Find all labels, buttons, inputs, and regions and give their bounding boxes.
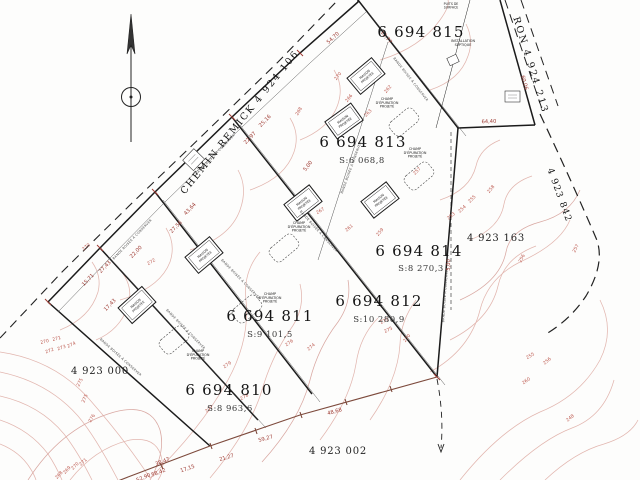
contour-elevation-label: 263 xyxy=(363,108,373,118)
contour-elevation-label: 268 xyxy=(294,106,304,117)
dimension-label: 59,27 xyxy=(258,434,274,444)
projected-house: MAISONPROJETÉE xyxy=(361,182,399,218)
contour-lines xyxy=(0,0,638,480)
contour-elevation-label: 261 xyxy=(344,223,355,233)
parcel-area: S:6 068,8 xyxy=(339,156,385,166)
septic-symbol xyxy=(447,54,459,65)
adjacent-lot-number: 4 923 000 xyxy=(71,366,129,377)
contour-elevation-label: 274 xyxy=(66,340,77,349)
septic-field-label: PROJETÉ xyxy=(191,356,205,361)
contour-elevation-label: 260 xyxy=(521,376,532,386)
dimension-label: 64,40 xyxy=(481,119,496,126)
contour-elevation-label: 256 xyxy=(542,356,553,366)
contour-elevation-label: 272 xyxy=(146,257,157,267)
parcel-number: 6 694 812 xyxy=(335,292,422,310)
parcel-number: 6 694 811 xyxy=(226,307,313,325)
parcel-area: S:9 101,5 xyxy=(247,330,293,340)
survey-map: MAISONPROJETÉEMAISONPROJETÉEMAISONPROJET… xyxy=(0,0,640,480)
contour-elevation-label: 273 xyxy=(57,344,67,353)
contour-elevation-label: 271 xyxy=(52,335,62,343)
contour-elevation-label: 262 xyxy=(383,84,393,95)
puits-marker-box xyxy=(505,91,520,102)
buffer-strip-label: BANDE BOISÉE À CONSERVER xyxy=(440,267,449,323)
contour-elevation-label: 275 xyxy=(75,377,84,388)
contour-elevation-label: 270 xyxy=(40,338,50,346)
buffer-strip-label: BANDE BOISÉE À CONSERVER xyxy=(220,257,262,300)
dimension-label: 17,43 xyxy=(103,298,118,313)
septic-field-label: PROJETÉ xyxy=(380,104,394,109)
contour-elevation-label: 279 xyxy=(222,360,233,370)
dimension-label: 54,70 xyxy=(326,31,341,46)
septic-field-label: PROJETÉ xyxy=(263,299,277,304)
parcel-number: 6 694 815 xyxy=(377,23,464,41)
contour-elevation-label: 270 xyxy=(333,71,343,82)
contour-elevation-label: 275 xyxy=(81,393,90,404)
dimension-label: 5,00 xyxy=(446,259,452,271)
dimension-label: 60,06 xyxy=(519,75,529,91)
dimension-label: 27,43 xyxy=(98,260,113,275)
parcel-number: 6 694 814 xyxy=(375,242,462,260)
contour-elevation-label: 267 xyxy=(315,206,326,216)
adjacent-lot-number: 4 923 163 xyxy=(467,233,525,244)
dimension-label: 22,00 xyxy=(129,245,144,260)
dimension-label: 5,00 xyxy=(302,160,314,173)
boundary-4923842-dashed xyxy=(540,114,599,334)
road-remick-dashed-edge xyxy=(0,0,338,338)
parcel-area: S:10 280,9 xyxy=(353,315,405,325)
septic-field-outline xyxy=(267,232,301,264)
septic-field-outline xyxy=(402,160,436,192)
projected-house: MAISONPROJETÉE xyxy=(185,237,223,274)
buffer-strip-label: BANDE BOISÉE À CONSERVER xyxy=(392,56,430,103)
bottom-right-dashed xyxy=(437,379,442,448)
contour-elevation-label: 254 xyxy=(457,204,468,214)
contour-elevation-label: 258 xyxy=(486,184,496,195)
contour-elevation-label: 255 xyxy=(525,351,536,361)
septic-installation-label: SEPTIQUE xyxy=(455,43,472,47)
buffer-strip-label: BANDE BOISÉE À CONSERVER xyxy=(165,307,207,350)
contour-elevation-label: 248 xyxy=(565,413,576,423)
dimension-label: 48,68 xyxy=(327,407,343,417)
parcel-area: S:8 963,6 xyxy=(207,404,253,414)
contour-elevation-label: 257 xyxy=(571,243,580,254)
dimension-label: 17,15 xyxy=(180,464,196,475)
contour-elevation-label: 276 xyxy=(87,413,97,424)
contour-elevation-label: 275 xyxy=(383,325,394,334)
contour-elevation-label: 270 xyxy=(81,242,92,252)
projected-house: MAISONPROJETÉE xyxy=(118,286,156,323)
contour-elevation-label: 266 xyxy=(344,93,354,104)
septic-field-label: PROJETÉ xyxy=(292,228,306,233)
contour-elevation-label: 257 xyxy=(412,166,422,176)
lot-815-south-line xyxy=(458,125,535,128)
parcel-number: 6 694 813 xyxy=(319,133,406,151)
dimension-label: 27,56 xyxy=(169,220,184,235)
parcel-area: S:8 270,3 xyxy=(398,264,444,274)
survey-plan-page: MAISONPROJETÉEMAISONPROJETÉEMAISONPROJET… xyxy=(0,0,640,480)
contour-elevation-label: 259 xyxy=(375,227,385,238)
dimension-label: 21,27 xyxy=(219,453,235,463)
north-arrow-icon xyxy=(122,14,141,142)
contour-elevation-label: 274 xyxy=(306,342,317,352)
projected-house: MAISONPROJETÉE xyxy=(347,58,385,95)
parcel-number: 6 694 810 xyxy=(185,381,272,399)
contour-elevation-label: 272 xyxy=(45,347,55,356)
dimension-label: 25,16 xyxy=(258,114,273,129)
septic-field-label: PROJETÉ xyxy=(408,154,422,159)
dimension-label: 58,42 xyxy=(151,468,167,479)
contour-elevation-label: 255 xyxy=(467,194,477,204)
contour-elevation-label: 253 xyxy=(446,211,457,221)
surface-well-label: SURFACE xyxy=(444,6,458,10)
dimension-label: 15,71 xyxy=(81,273,96,288)
dimension-label: 43,64 xyxy=(183,201,198,216)
contour-elevation-label: 271 xyxy=(78,457,89,467)
adjacent-lot-number: 4 923 002 xyxy=(309,446,367,457)
